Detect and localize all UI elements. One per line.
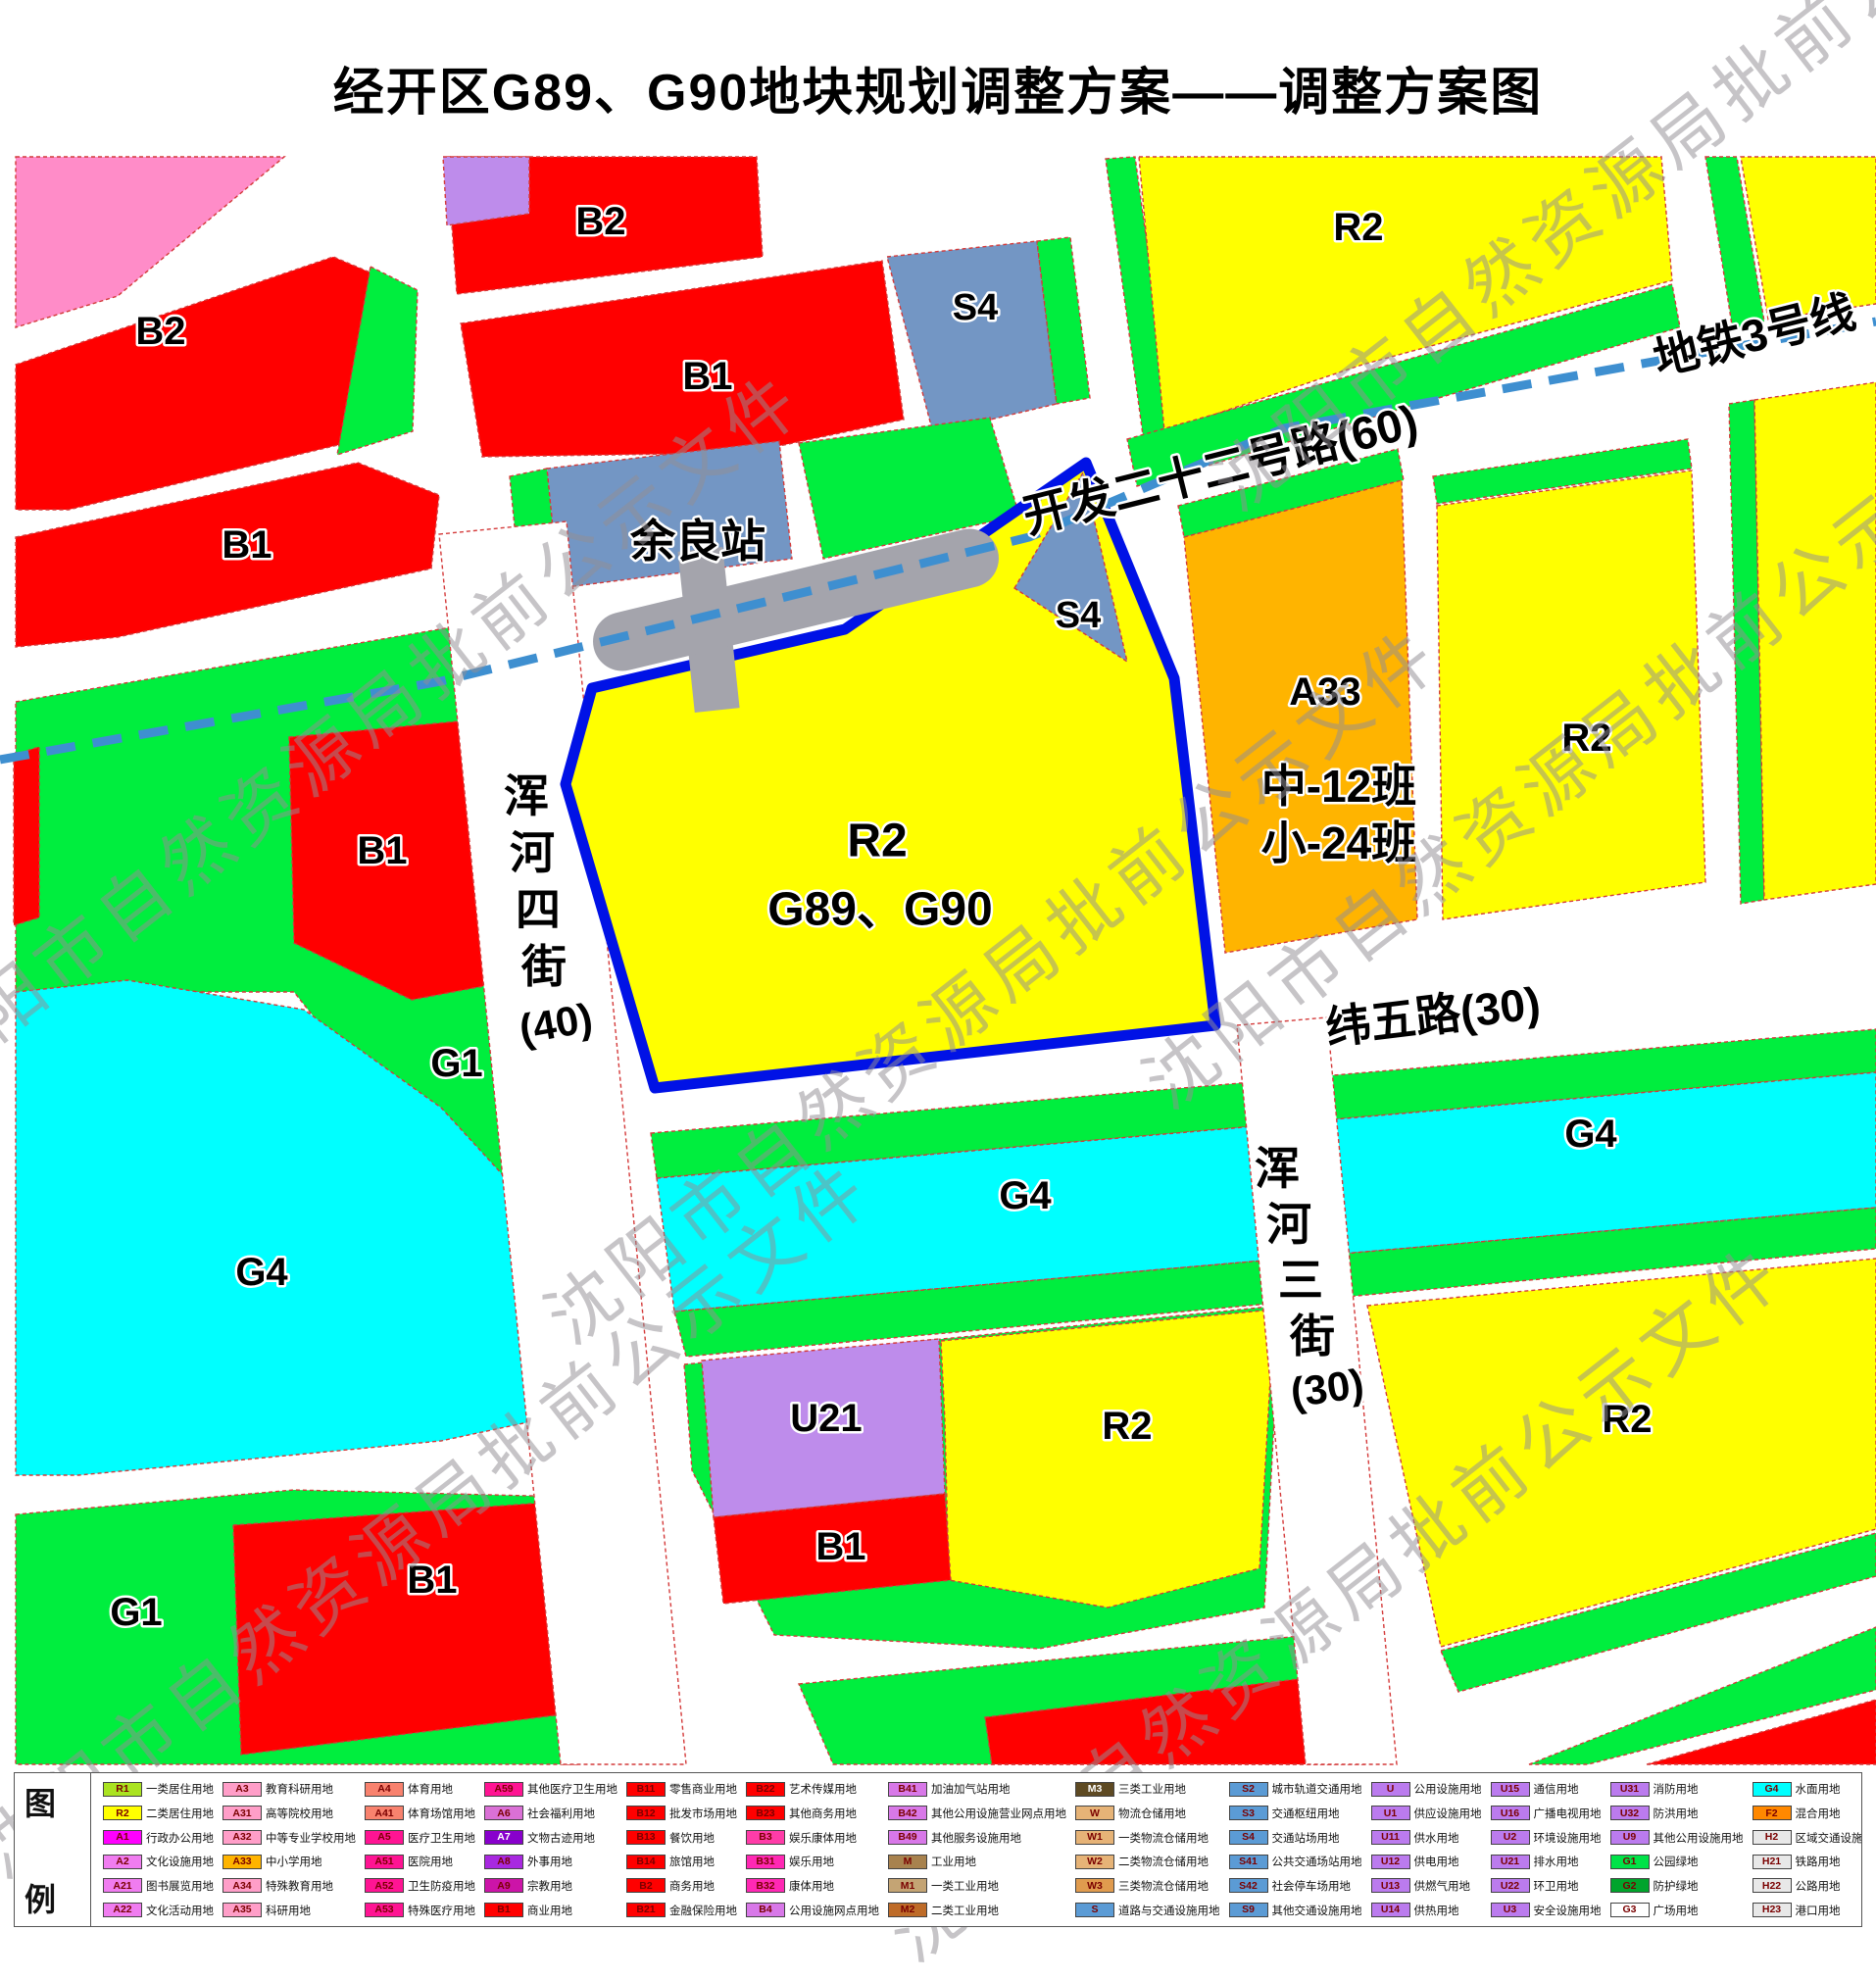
legend-label: 中小学用地 <box>266 1854 322 1869</box>
legend-swatch: S3 <box>1229 1806 1268 1820</box>
legend-swatch: A21 <box>103 1878 142 1893</box>
map-label: R2 <box>1602 1398 1652 1441</box>
legend-label: 二类工业用地 <box>931 1903 999 1918</box>
legend-swatch: B32 <box>746 1878 785 1893</box>
legend-label: 安全设施用地 <box>1534 1903 1602 1918</box>
parcel-r2-fr <box>1754 382 1876 900</box>
legend-item: F2混合用地 <box>1753 1806 1862 1821</box>
legend-item: U31消防用地 <box>1610 1781 1744 1797</box>
legend-label: 金融保险用地 <box>669 1903 737 1918</box>
legend-swatch: B2 <box>626 1878 666 1893</box>
legend-item: A51医院用地 <box>365 1854 475 1869</box>
map-label: 街 <box>520 941 567 992</box>
legend-swatch: A9 <box>484 1878 523 1893</box>
legend-label: 图书展览用地 <box>146 1878 214 1894</box>
legend-label: 特殊教育用地 <box>266 1878 333 1894</box>
map-label: 河 <box>1266 1199 1311 1250</box>
map-label: B1 <box>815 1525 865 1568</box>
legend-item: B31娱乐用地 <box>746 1854 879 1869</box>
map-label: 浑 <box>504 770 549 821</box>
legend-swatch: A7 <box>484 1830 523 1845</box>
legend-swatch: A52 <box>365 1878 404 1893</box>
legend-label: 防洪用地 <box>1654 1806 1699 1821</box>
legend-item: U15通信用地 <box>1491 1781 1602 1797</box>
map-label: G4 <box>999 1174 1052 1217</box>
map-label: G89、G90 <box>767 884 992 936</box>
legend-swatch: H2 <box>1753 1830 1792 1845</box>
legend-label: 公用设施网点用地 <box>789 1903 879 1918</box>
legend-swatch: U1 <box>1371 1806 1410 1820</box>
legend-item: A21图书展览用地 <box>103 1878 214 1894</box>
legend-swatch: S <box>1075 1903 1114 1917</box>
legend-label: 一类居住用地 <box>146 1781 214 1797</box>
map-label: 三 <box>1278 1255 1323 1306</box>
map-label: 中-12班 <box>1261 761 1416 812</box>
legend-label: 行政办公用地 <box>146 1830 214 1846</box>
legend-item: U13供燃气用地 <box>1371 1878 1482 1894</box>
legend-label: 宗教用地 <box>527 1878 572 1894</box>
legend-item: A31高等院校用地 <box>222 1806 356 1821</box>
legend-item: A34特殊教育用地 <box>222 1878 356 1894</box>
legend-item: S9其他交通设施用地 <box>1229 1903 1362 1918</box>
parcel-a33-school <box>1184 480 1417 953</box>
legend-item: W2二类物流仓储用地 <box>1075 1854 1220 1869</box>
zoning-map: B2B1B2B1S4余良站R2地铁3号线开发二十二号路(60)S4R2G89、G… <box>0 0 1876 1937</box>
legend-label: 社会福利用地 <box>527 1806 595 1821</box>
legend-item: S3交通枢纽用地 <box>1229 1806 1362 1821</box>
red-sliver-west <box>14 747 39 925</box>
legend-label: 加油加气站用地 <box>931 1781 1011 1797</box>
map-label: B2 <box>575 200 625 243</box>
legend-item: S41公共交通场站用地 <box>1229 1854 1362 1869</box>
legend-item: G2防护绿地 <box>1610 1878 1744 1894</box>
map-label: U21 <box>790 1397 862 1440</box>
legend-item: B22艺术传媒用地 <box>746 1781 879 1797</box>
legend-label: 其他商务用地 <box>789 1806 857 1821</box>
legend-label: 公共交通场站用地 <box>1272 1854 1362 1869</box>
legend-item: B41加油加气站用地 <box>888 1781 1066 1797</box>
map-label: 街 <box>1289 1311 1335 1361</box>
legend-swatch: G3 <box>1610 1903 1650 1917</box>
legend-label: 二类物流仓储用地 <box>1118 1854 1209 1869</box>
legend-swatch: G1 <box>1610 1855 1650 1869</box>
legend-item: B4公用设施网点用地 <box>746 1903 879 1918</box>
legend-item: A59其他医疗卫生用地 <box>484 1781 617 1797</box>
legend-swatch: B42 <box>888 1806 927 1820</box>
legend-swatch: U15 <box>1491 1782 1530 1797</box>
legend-swatch: U3 <box>1491 1903 1530 1917</box>
legend-label: 水面用地 <box>1796 1781 1841 1797</box>
legend-title-char-2: 例 <box>25 1875 56 1920</box>
map-label: A33 <box>1289 670 1360 714</box>
legend-swatch: A59 <box>484 1782 523 1797</box>
legend-item: U14供热用地 <box>1371 1903 1482 1918</box>
legend-label: 物流仓储用地 <box>1118 1806 1186 1821</box>
legend-label: 医疗卫生用地 <box>408 1830 475 1846</box>
legend-label: 供燃气用地 <box>1414 1878 1471 1894</box>
legend-swatch: S2 <box>1229 1782 1268 1797</box>
legend-swatch: M2 <box>888 1903 927 1917</box>
legend-item: A22文化活动用地 <box>103 1903 214 1918</box>
map-label: B1 <box>407 1559 457 1602</box>
legend-item: B1商业用地 <box>484 1903 617 1918</box>
legend-label: 排水用地 <box>1534 1854 1579 1869</box>
legend-item: A52卫生防疫用地 <box>365 1878 475 1894</box>
legend-swatch: A51 <box>365 1855 404 1869</box>
map-label: R2 <box>1561 717 1611 760</box>
legend-label: 旅馆用地 <box>669 1854 715 1869</box>
legend-label: 环卫用地 <box>1534 1878 1579 1894</box>
legend-label: 一类工业用地 <box>931 1878 999 1894</box>
legend-label: 供热用地 <box>1414 1903 1459 1918</box>
legend-item: S4交通站场用地 <box>1229 1830 1362 1846</box>
legend-item: A53特殊医疗用地 <box>365 1903 475 1918</box>
map-label: R2 <box>1102 1405 1152 1448</box>
map-label: G4 <box>235 1251 288 1294</box>
legend-item: R1一类居住用地 <box>103 1781 214 1797</box>
legend-item: S道路与交通设施用地 <box>1075 1903 1220 1918</box>
legend-label: 港口用地 <box>1796 1903 1841 1918</box>
legend-item: U21排水用地 <box>1491 1854 1602 1869</box>
legend-item: B23其他商务用地 <box>746 1806 879 1821</box>
map-label: R2 <box>1333 206 1383 249</box>
legend-swatch: S4 <box>1229 1830 1268 1845</box>
legend-item: A4体育用地 <box>365 1781 475 1797</box>
legend-item: M2二类工业用地 <box>888 1903 1066 1918</box>
legend-label: 区域交通设施用地 <box>1796 1830 1862 1846</box>
map-label: B1 <box>682 355 732 398</box>
legend-swatch: U12 <box>1371 1855 1410 1869</box>
legend-item: U公用设施用地 <box>1371 1781 1482 1797</box>
legend-label: 混合用地 <box>1796 1806 1841 1821</box>
map-label: 纬五路(30) <box>1323 977 1544 1054</box>
legend-label: 文物古迹用地 <box>527 1830 595 1846</box>
legend-item: U1供应设施用地 <box>1371 1806 1482 1821</box>
legend-swatch: A4 <box>365 1782 404 1797</box>
legend-swatch: U9 <box>1610 1830 1650 1845</box>
legend-label: 体育场馆用地 <box>408 1806 475 1821</box>
legend-swatch: G4 <box>1753 1782 1792 1797</box>
legend-label: 体育用地 <box>408 1781 453 1797</box>
legend-item: M工业用地 <box>888 1854 1066 1869</box>
map-label: R2 <box>847 816 907 867</box>
legend-item: B3娱乐康体用地 <box>746 1830 879 1846</box>
legend-label: 批发市场用地 <box>669 1806 737 1821</box>
parcel-u-notch <box>443 157 529 225</box>
legend-swatch: A35 <box>222 1903 262 1917</box>
legend-label: 道路与交通设施用地 <box>1118 1903 1220 1918</box>
legend-label: 公路用地 <box>1796 1878 1841 1894</box>
legend-swatch: R1 <box>103 1782 142 1797</box>
legend-label: 城市轨道交通用地 <box>1272 1781 1362 1797</box>
legend-item: S42社会停车场用地 <box>1229 1878 1362 1894</box>
legend-swatch: U <box>1371 1782 1410 1797</box>
legend-swatch: B12 <box>626 1806 666 1820</box>
legend-swatch: F2 <box>1753 1806 1792 1820</box>
legend-label: 外事用地 <box>527 1854 572 1869</box>
legend-swatch: W <box>1075 1806 1114 1820</box>
legend-label: 铁路用地 <box>1796 1854 1841 1869</box>
map-label: S4 <box>953 287 998 328</box>
legend-label: 其他公用设施营业网点用地 <box>931 1806 1066 1821</box>
legend-label: 其他服务设施用地 <box>931 1830 1021 1846</box>
legend-item: U12供电用地 <box>1371 1854 1482 1869</box>
legend-item: B2商务用地 <box>626 1878 737 1894</box>
legend-swatch: U13 <box>1371 1878 1410 1893</box>
legend-item: W3三类物流仓储用地 <box>1075 1878 1220 1894</box>
legend-label: 零售商业用地 <box>669 1781 737 1797</box>
legend-item: W物流仓储用地 <box>1075 1806 1220 1821</box>
legend-item: B21金融保险用地 <box>626 1903 737 1918</box>
map-label: 河 <box>510 827 555 878</box>
legend-label: 医院用地 <box>408 1854 453 1869</box>
legend-swatch: B14 <box>626 1855 666 1869</box>
legend-swatch: A3 <box>222 1782 262 1797</box>
legend-swatch: A8 <box>484 1855 523 1869</box>
legend-item: B42其他公用设施营业网点用地 <box>888 1806 1066 1821</box>
legend-label: 供应设施用地 <box>1414 1806 1482 1821</box>
legend-swatch: B11 <box>626 1782 666 1797</box>
legend-label: 供电用地 <box>1414 1854 1459 1869</box>
legend-swatch: A41 <box>365 1806 404 1820</box>
legend-swatch: S9 <box>1229 1903 1268 1917</box>
legend-item: U11供水用地 <box>1371 1830 1482 1846</box>
legend-swatch: U31 <box>1610 1782 1650 1797</box>
map-label: S4 <box>1056 595 1101 636</box>
legend-item: A5医疗卫生用地 <box>365 1830 475 1846</box>
map-label: G1 <box>430 1042 482 1085</box>
legend-item: M1一类工业用地 <box>888 1878 1066 1894</box>
legend-swatch: U14 <box>1371 1903 1410 1917</box>
legend-label: 防护绿地 <box>1654 1878 1699 1894</box>
legend-item: B12批发市场用地 <box>626 1806 737 1821</box>
legend-label: 交通站场用地 <box>1272 1830 1340 1846</box>
legend-item: B49其他服务设施用地 <box>888 1830 1066 1846</box>
legend-swatch: B49 <box>888 1830 927 1845</box>
legend-label: 卫生防疫用地 <box>408 1878 475 1894</box>
legend-item: H21铁路用地 <box>1753 1854 1862 1869</box>
legend-swatch: A2 <box>103 1855 142 1869</box>
legend-label: 公用设施用地 <box>1414 1781 1482 1797</box>
map-label: G4 <box>1564 1113 1617 1156</box>
legend-label: 供水用地 <box>1414 1830 1459 1846</box>
legend-swatch: U2 <box>1491 1830 1530 1845</box>
legend-item: G1公园绿地 <box>1610 1854 1744 1869</box>
legend-swatch: G2 <box>1610 1878 1650 1893</box>
legend-label: 消防用地 <box>1654 1781 1699 1797</box>
legend-swatch: A34 <box>222 1878 262 1893</box>
legend-label: 教育科研用地 <box>266 1781 333 1797</box>
legend-swatch: B3 <box>746 1830 785 1845</box>
legend-swatch: B23 <box>746 1806 785 1820</box>
legend-swatch: W2 <box>1075 1855 1114 1869</box>
legend-swatch: S42 <box>1229 1878 1268 1893</box>
legend-item: A7文物古迹用地 <box>484 1830 617 1846</box>
legend-swatch: A53 <box>365 1903 404 1917</box>
legend-label: 广播电视用地 <box>1534 1806 1602 1821</box>
legend-label: 中等专业学校用地 <box>266 1830 356 1846</box>
legend-item: U3安全设施用地 <box>1491 1903 1602 1918</box>
parcel-r2-bm <box>941 1310 1274 1608</box>
legend-item: A3教育科研用地 <box>222 1781 356 1797</box>
legend-swatch: B41 <box>888 1782 927 1797</box>
legend-item: H23港口用地 <box>1753 1903 1862 1918</box>
legend-label: 广场用地 <box>1654 1903 1699 1918</box>
legend-item: M3三类工业用地 <box>1075 1781 1220 1797</box>
legend-swatch: B1 <box>484 1903 523 1917</box>
legend-swatch: B21 <box>626 1903 666 1917</box>
legend-label: 其他医疗卫生用地 <box>527 1781 617 1797</box>
legend-swatch: R2 <box>103 1806 142 1820</box>
map-label: 余良站 <box>629 516 765 567</box>
legend-item: A8外事用地 <box>484 1854 617 1869</box>
map-label: 四 <box>516 884 561 935</box>
legend-label: 文化设施用地 <box>146 1854 214 1869</box>
legend-swatch: A33 <box>222 1855 262 1869</box>
legend-item: A33中小学用地 <box>222 1854 356 1869</box>
legend-swatch: H23 <box>1753 1903 1792 1917</box>
legend-swatch: B4 <box>746 1903 785 1917</box>
legend-label: 商业用地 <box>527 1903 572 1918</box>
legend-swatch: U16 <box>1491 1806 1530 1820</box>
legend-item: A6社会福利用地 <box>484 1806 617 1821</box>
legend-item: S2城市轨道交通用地 <box>1229 1781 1362 1797</box>
legend-swatch: W3 <box>1075 1878 1114 1893</box>
legend-item: R2二类居住用地 <box>103 1806 214 1821</box>
legend-item: A41体育场馆用地 <box>365 1806 475 1821</box>
legend-swatch: M <box>888 1855 927 1869</box>
legend-label: 三类工业用地 <box>1118 1781 1186 1797</box>
legend-item: U16广播电视用地 <box>1491 1806 1602 1821</box>
legend-item: A2文化设施用地 <box>103 1854 214 1869</box>
parcel-r2-east <box>1437 470 1705 919</box>
legend-title-char-1: 图 <box>25 1779 56 1824</box>
legend-label: 高等院校用地 <box>266 1806 333 1821</box>
legend-item: A35科研用地 <box>222 1903 356 1918</box>
legend-swatch: U22 <box>1491 1878 1530 1893</box>
legend-item: B32康体用地 <box>746 1878 879 1894</box>
legend: 图 例 R1一类居住用地R2二类居住用地A1行政办公用地A2文化设施用地A21图… <box>14 1772 1862 1927</box>
legend-item: B14旅馆用地 <box>626 1854 737 1869</box>
legend-label: 商务用地 <box>669 1878 715 1894</box>
legend-swatch: A31 <box>222 1806 262 1820</box>
legend-label: 特殊医疗用地 <box>408 1903 475 1918</box>
legend-item: A32中等专业学校用地 <box>222 1830 356 1846</box>
legend-label: 娱乐康体用地 <box>789 1830 857 1846</box>
legend-swatch: S41 <box>1229 1855 1268 1869</box>
legend-swatch: A32 <box>222 1830 262 1845</box>
legend-item: W1一类物流仓储用地 <box>1075 1830 1220 1846</box>
legend-swatch: B31 <box>746 1855 785 1869</box>
legend-item: A1行政办公用地 <box>103 1830 214 1846</box>
map-label: B2 <box>135 310 185 353</box>
map-label: B1 <box>357 829 407 872</box>
legend-item: B13餐饮用地 <box>626 1830 737 1846</box>
legend-label: 环境设施用地 <box>1534 1830 1602 1846</box>
legend-item: G4水面用地 <box>1753 1781 1862 1797</box>
legend-swatch: U21 <box>1491 1855 1530 1869</box>
legend-swatch: U11 <box>1371 1830 1410 1845</box>
legend-label: 三类物流仓储用地 <box>1118 1878 1209 1894</box>
legend-grid: R1一类居住用地R2二类居住用地A1行政办公用地A2文化设施用地A21图书展览用… <box>91 1773 1861 1926</box>
map-label: 小-24班 <box>1261 817 1416 868</box>
legend-item: A9宗教用地 <box>484 1878 617 1894</box>
legend-swatch: M3 <box>1075 1782 1114 1797</box>
legend-swatch: W1 <box>1075 1830 1114 1845</box>
legend-swatch: B22 <box>746 1782 785 1797</box>
legend-title: 图 例 <box>15 1773 91 1926</box>
parcel-s4-mid <box>887 241 1057 433</box>
legend-swatch: M1 <box>888 1878 927 1893</box>
legend-swatch: U32 <box>1610 1806 1650 1820</box>
legend-label: 其他公用设施用地 <box>1654 1830 1744 1846</box>
legend-item: H2区域交通设施用地 <box>1753 1830 1862 1846</box>
legend-swatch: A5 <box>365 1830 404 1845</box>
legend-label: 其他交通设施用地 <box>1272 1903 1362 1918</box>
plan-map-stage: 经开区G89、G90地块规划调整方案——调整方案图 <box>0 0 1876 1937</box>
legend-item: U2环境设施用地 <box>1491 1830 1602 1846</box>
legend-label: 交通枢纽用地 <box>1272 1806 1340 1821</box>
legend-label: 娱乐用地 <box>789 1854 834 1869</box>
legend-swatch: H21 <box>1753 1855 1792 1869</box>
legend-label: 一类物流仓储用地 <box>1118 1830 1209 1846</box>
legend-item: H22公路用地 <box>1753 1878 1862 1894</box>
legend-label: 文化活动用地 <box>146 1903 214 1918</box>
legend-item: U22环卫用地 <box>1491 1878 1602 1894</box>
legend-item: U9其他公用设施用地 <box>1610 1830 1744 1846</box>
legend-label: 公园绿地 <box>1654 1854 1699 1869</box>
legend-swatch: B13 <box>626 1830 666 1845</box>
legend-swatch: A1 <box>103 1830 142 1845</box>
legend-swatch: A22 <box>103 1903 142 1917</box>
legend-label: 社会停车场用地 <box>1272 1878 1352 1894</box>
legend-label: 工业用地 <box>931 1854 976 1869</box>
legend-item: G3广场用地 <box>1610 1903 1744 1918</box>
legend-label: 康体用地 <box>789 1878 834 1894</box>
map-label: 浑 <box>1255 1143 1300 1194</box>
legend-item: B11零售商业用地 <box>626 1781 737 1797</box>
map-label: B1 <box>222 523 272 567</box>
legend-swatch: H22 <box>1753 1878 1792 1893</box>
legend-label: 二类居住用地 <box>146 1806 214 1821</box>
legend-label: 科研用地 <box>266 1903 311 1918</box>
legend-swatch: A6 <box>484 1806 523 1820</box>
legend-label: 餐饮用地 <box>669 1830 715 1846</box>
legend-label: 艺术传媒用地 <box>789 1781 857 1797</box>
map-label: G1 <box>110 1591 162 1634</box>
legend-item: U32防洪用地 <box>1610 1806 1744 1821</box>
legend-label: 通信用地 <box>1534 1781 1579 1797</box>
